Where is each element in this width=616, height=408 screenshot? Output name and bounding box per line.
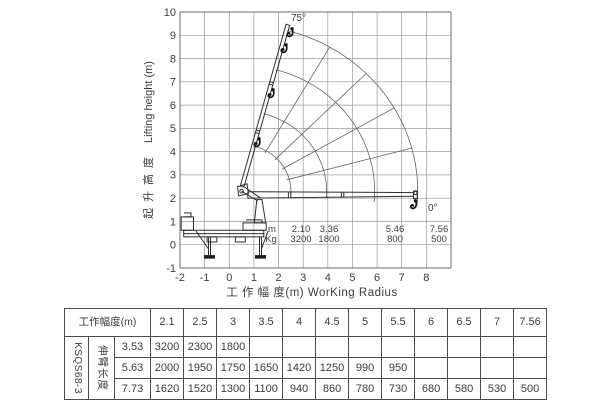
- min-angle-label: 0°: [428, 203, 438, 214]
- tip-sheave: [414, 191, 417, 194]
- capacity-cell: 1620: [151, 379, 184, 400]
- y-axis-title: 起升高度Lifting height (m): [141, 61, 155, 219]
- y-tick-label: 6: [170, 100, 176, 112]
- capacity-cell: [415, 358, 448, 379]
- x-tick-label: 0: [226, 272, 232, 284]
- crane-outline: [248, 192, 414, 193]
- x-tick-label: 6: [374, 272, 380, 284]
- capacity-cell: 2300: [184, 337, 217, 358]
- inline-row-label: Kg: [265, 234, 277, 245]
- table-column-header: 6.5: [448, 309, 481, 337]
- capacity-cell: 1950: [184, 358, 217, 379]
- table-column-header: 3: [217, 309, 250, 337]
- crane-outline: [260, 237, 262, 255]
- capacity-cell: 1650: [250, 358, 283, 379]
- capacity-cell: [415, 337, 448, 358]
- outrigger-foot: [204, 255, 215, 259]
- capacity-cell: [514, 358, 547, 379]
- capacity-cell: 1750: [217, 358, 250, 379]
- y-tick-label: 4: [170, 146, 176, 158]
- y-tick-label: 5: [170, 123, 176, 135]
- working-range-chart: 109876543210-1-2-1012345678 mKg2.103.365…: [0, 0, 616, 302]
- capacity-cell: 950: [382, 358, 415, 379]
- capacity-cell: [481, 337, 514, 358]
- y-tick-label: 9: [170, 30, 176, 42]
- working-envelope: [254, 31, 417, 206]
- table-row: 7.73162015201300110094086078073068058053…: [65, 379, 547, 400]
- y-tick-label: 10: [164, 7, 176, 19]
- x-tick-label: 1: [251, 272, 257, 284]
- crane-outline: [181, 217, 193, 230]
- inline-load-value: 500: [431, 234, 447, 245]
- plot-border: [180, 12, 451, 268]
- crane-outline: [235, 237, 245, 242]
- x-axis-title: 工 作 幅 度(m) WorKing Radius: [226, 285, 397, 299]
- table-row: 5.63200019501750165014201250990950: [65, 358, 547, 379]
- x-tick-label: 5: [349, 272, 355, 284]
- table-column-header: 6: [415, 309, 448, 337]
- crane-outline: [184, 213, 191, 217]
- capacity-cell: [250, 337, 283, 358]
- y-tick-label: 0: [170, 240, 176, 252]
- capacity-cell: 2000: [151, 358, 184, 379]
- table-header-working-radius: 工作幅度(m): [65, 309, 151, 337]
- capacity-cell: 1420: [283, 358, 316, 379]
- capacity-arc: [254, 146, 291, 195]
- capacity-arc: [276, 70, 375, 202]
- capacity-cell: 580: [448, 379, 481, 400]
- y-tick-label: 2: [170, 193, 176, 205]
- capacity-cell: 780: [349, 379, 382, 400]
- capacity-cell: 500: [514, 379, 547, 400]
- crane-outline: [288, 192, 290, 198]
- boom-length-group-cell: 伸臂长度: [89, 337, 115, 400]
- table-column-header: 5: [349, 309, 382, 337]
- x-tick-label: 3: [300, 272, 306, 284]
- y-tick-label: 7: [170, 77, 176, 89]
- capacity-cell: 990: [349, 358, 382, 379]
- capacity-cell: 940: [283, 379, 316, 400]
- capacity-cell: [283, 337, 316, 358]
- y-tick-label: 1: [170, 216, 176, 228]
- crane-outline: [242, 191, 258, 201]
- x-tick-label: -1: [200, 272, 210, 284]
- x-tick-label: 7: [399, 272, 405, 284]
- crane-outline: [245, 187, 261, 198]
- table-row: KSQS68-3伸臂长度3.53320023001800: [65, 337, 547, 358]
- grid-line: [180, 12, 451, 268]
- table-column-header: 3.5: [250, 309, 283, 337]
- capacity-cell: [349, 337, 382, 358]
- load-capacity-table: 工作幅度(m) 2.12.533.544.555.566.577.56 KSQS…: [64, 308, 547, 400]
- crane-outline: [209, 237, 211, 255]
- boom-length-group-label: 伸臂长度: [96, 345, 107, 391]
- boom-length-cell: 7.73: [115, 379, 151, 400]
- model-label: KSQS68-3: [72, 342, 82, 394]
- grid-lines: [180, 12, 451, 268]
- crane-load-chart-page: 109876543210-1-2-1012345678 mKg2.103.365…: [0, 0, 616, 408]
- capacity-cell: [448, 337, 481, 358]
- capacity-cell: 860: [316, 379, 349, 400]
- x-tick-label: 8: [423, 272, 429, 284]
- hook-icon: [411, 199, 417, 208]
- capacity-cell: [448, 358, 481, 379]
- capacity-cell: 1800: [217, 337, 250, 358]
- capacity-cell: 680: [415, 379, 448, 400]
- table-column-header: 5.5: [382, 309, 415, 337]
- crane-outline: [243, 223, 266, 230]
- table-column-header: 7.56: [514, 309, 547, 337]
- inline-load-value: 1800: [318, 234, 339, 245]
- table-column-header: 7: [481, 309, 514, 337]
- x-tick-label: 4: [325, 272, 331, 284]
- inline-load-value: 3200: [290, 234, 311, 245]
- capacity-cell: [316, 337, 349, 358]
- table-column-header: 4: [283, 309, 316, 337]
- hook-curve: [411, 202, 416, 208]
- model-label-cell: KSQS68-3: [65, 337, 89, 400]
- capacity-cell: 730: [382, 379, 415, 400]
- table-column-header: 4.5: [316, 309, 349, 337]
- table-column-header: 2.1: [151, 309, 184, 337]
- capacity-cell: 1520: [184, 379, 217, 400]
- capacity-cell: [382, 337, 415, 358]
- max-angle-label: 75°: [291, 13, 306, 24]
- capacity-cell: 530: [481, 379, 514, 400]
- x-tick-label: -2: [175, 272, 185, 284]
- table-column-header: 2.5: [184, 309, 217, 337]
- boom-length-cell: 5.63: [115, 358, 151, 379]
- inline-load-value: 800: [387, 234, 403, 245]
- capacity-cell: 1250: [316, 358, 349, 379]
- capacity-cell: 1100: [250, 379, 283, 400]
- capacity-cell: 1300: [217, 379, 250, 400]
- boom-length-cell: 3.53: [115, 337, 151, 358]
- y-tick-label: 3: [170, 170, 176, 182]
- capacity-cell: [481, 358, 514, 379]
- outrigger-foot: [255, 255, 266, 259]
- x-tick-label: 2: [275, 272, 281, 284]
- y-tick-label: 8: [170, 53, 176, 65]
- capacity-cell: 3200: [151, 337, 184, 358]
- inline-load-table: mKg2.103.365.467.5632001800800500: [265, 224, 448, 245]
- capacity-cell: [514, 337, 547, 358]
